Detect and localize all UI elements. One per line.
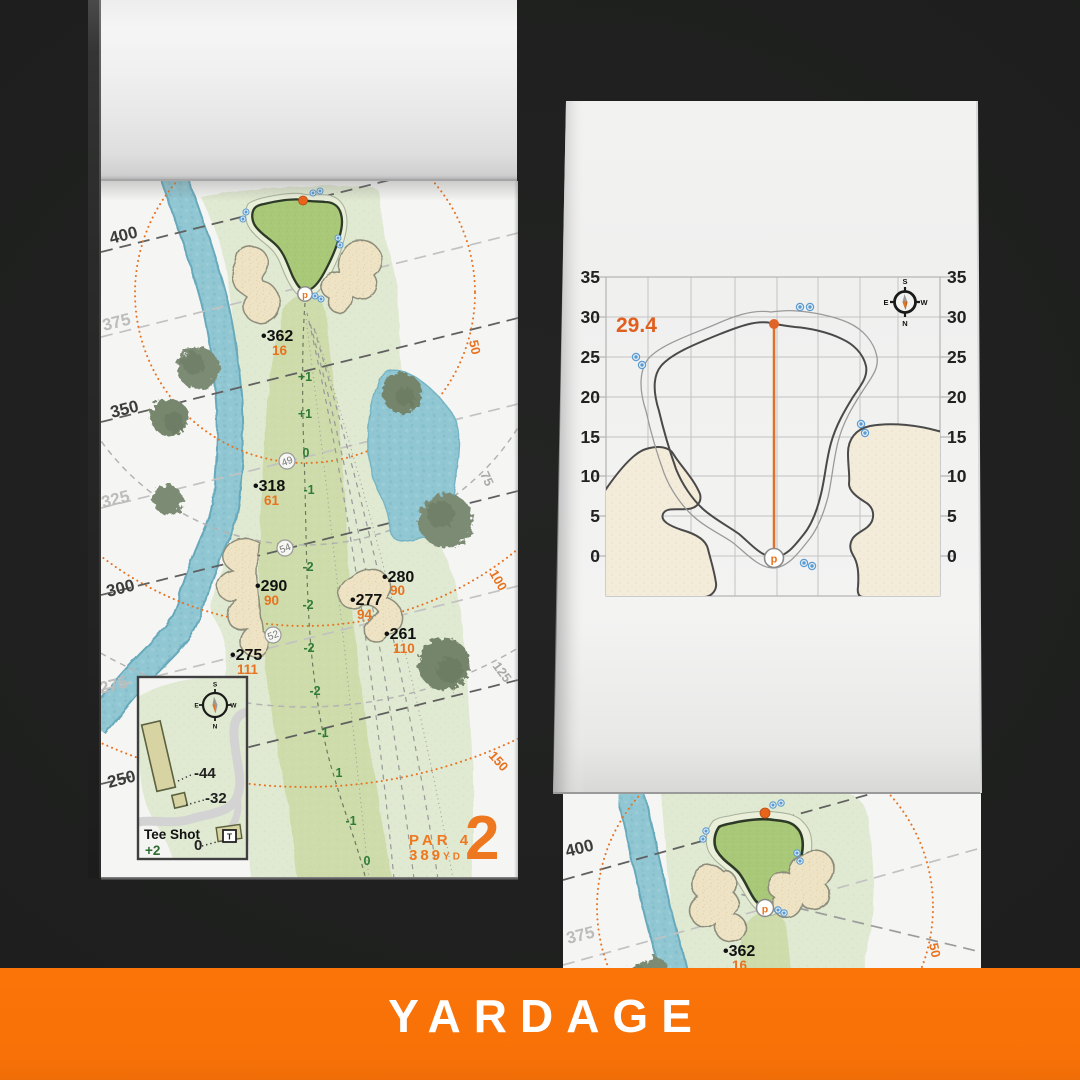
svg-text:-1: -1	[345, 814, 356, 828]
svg-text:0: 0	[947, 546, 957, 566]
svg-text:+1: +1	[298, 407, 312, 421]
svg-text:S: S	[213, 682, 218, 689]
svg-text:Tee Shot: Tee Shot	[144, 827, 201, 842]
svg-text:-44: -44	[194, 765, 216, 782]
svg-text:W: W	[920, 298, 928, 307]
svg-text:400: 400	[563, 836, 595, 861]
svg-text:S: S	[902, 277, 907, 286]
svg-text:10: 10	[581, 466, 601, 486]
svg-text:15: 15	[947, 427, 967, 447]
svg-text:2: 2	[465, 804, 499, 873]
svg-text:375: 375	[564, 923, 596, 948]
svg-text:15: 15	[581, 427, 601, 447]
svg-text:111: 111	[237, 662, 259, 677]
svg-text:p: p	[762, 904, 768, 916]
svg-text:5: 5	[947, 506, 957, 526]
svg-text:90: 90	[390, 583, 405, 598]
svg-text:20: 20	[947, 387, 967, 407]
svg-text:61: 61	[264, 493, 280, 508]
svg-text:25: 25	[581, 347, 601, 367]
svg-text:0: 0	[590, 546, 600, 566]
svg-text:35: 35	[947, 267, 967, 287]
svg-text:50: 50	[466, 339, 484, 356]
svg-text:30: 30	[581, 307, 601, 327]
svg-text:30: 30	[947, 307, 967, 327]
svg-text:-2: -2	[302, 560, 313, 574]
svg-text:E: E	[194, 703, 199, 710]
svg-text:p: p	[302, 290, 308, 301]
svg-text:400: 400	[107, 223, 139, 248]
svg-text:35: 35	[581, 267, 601, 287]
svg-text:1: 1	[336, 766, 343, 780]
svg-text:5: 5	[590, 506, 600, 526]
svg-text:20: 20	[581, 387, 601, 407]
svg-text:E: E	[883, 298, 888, 307]
svg-text:50: 50	[926, 942, 944, 959]
svg-text:-1: -1	[317, 726, 328, 740]
svg-text:T: T	[227, 832, 233, 842]
svg-text:W: W	[230, 703, 237, 710]
svg-text:-32: -32	[205, 790, 227, 807]
svg-text:16: 16	[272, 343, 288, 358]
svg-text:-2: -2	[302, 598, 313, 612]
svg-text:350: 350	[108, 397, 140, 422]
svg-text:10: 10	[947, 466, 967, 486]
svg-text:25: 25	[947, 347, 967, 367]
svg-text:+2: +2	[145, 843, 160, 858]
svg-text:+1: +1	[298, 370, 312, 384]
svg-text:325: 325	[101, 487, 131, 512]
svg-text:-2: -2	[309, 684, 320, 698]
svg-text:250: 250	[105, 767, 137, 792]
svg-text:100: 100	[486, 567, 510, 593]
svg-text:-2: -2	[303, 641, 314, 655]
svg-text:N: N	[213, 724, 218, 731]
svg-text:0: 0	[194, 837, 202, 854]
svg-text:N: N	[902, 319, 907, 328]
svg-text:-1: -1	[303, 483, 314, 497]
svg-text:0: 0	[364, 854, 371, 868]
svg-text:29.4: 29.4	[616, 314, 657, 337]
svg-text:p: p	[771, 554, 778, 566]
svg-text:90: 90	[264, 593, 279, 608]
svg-text:75: 75	[477, 469, 497, 488]
svg-text:300: 300	[104, 576, 136, 601]
svg-text:94: 94	[357, 607, 373, 622]
svg-text:0: 0	[303, 446, 310, 460]
svg-text:110: 110	[393, 641, 415, 656]
